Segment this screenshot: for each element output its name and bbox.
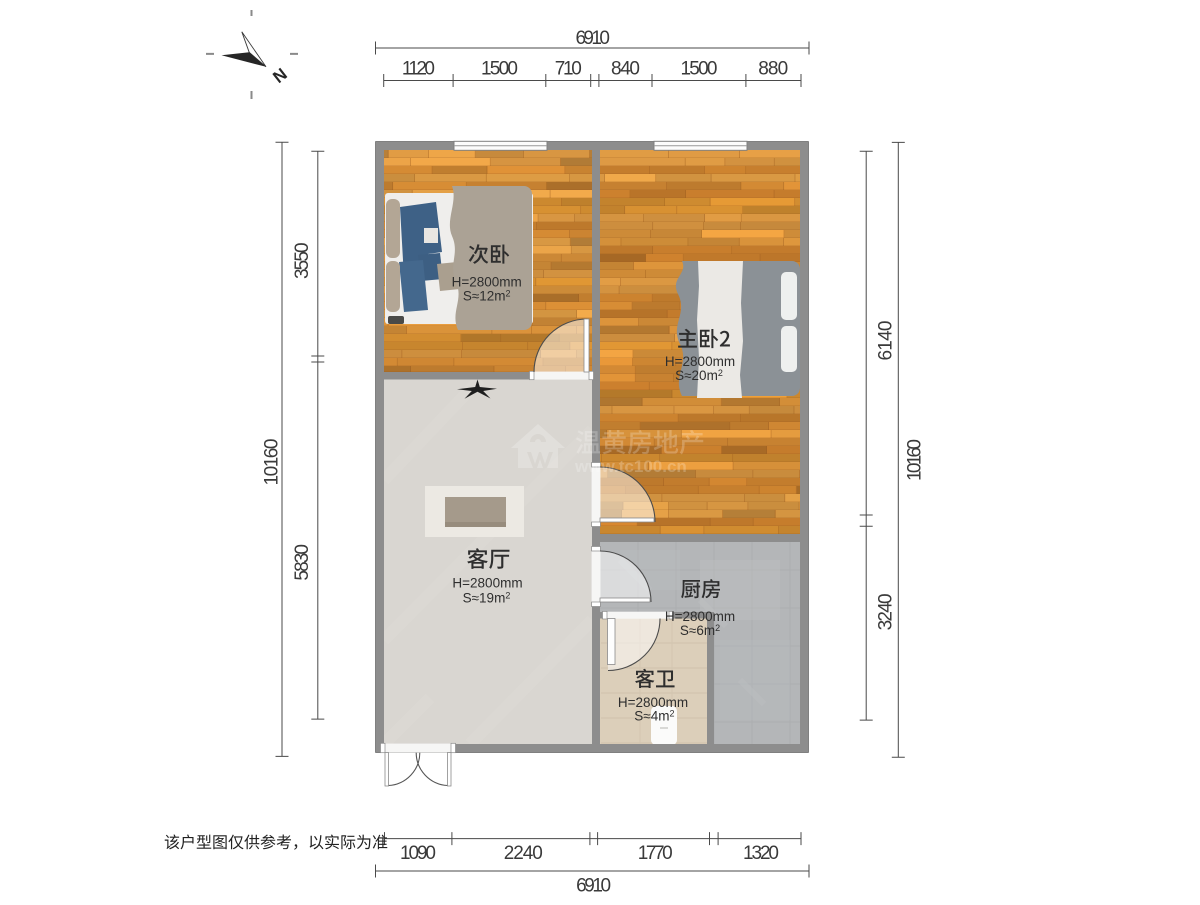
svg-text:5830: 5830 bbox=[292, 544, 313, 581]
svg-text:6910: 6910 bbox=[576, 876, 611, 897]
svg-text:S≈6m2: S≈6m2 bbox=[680, 623, 720, 638]
svg-text:www.tc100.cn: www.tc100.cn bbox=[574, 457, 687, 476]
svg-text:S≈20m2: S≈20m2 bbox=[675, 368, 723, 383]
svg-text:2240: 2240 bbox=[504, 843, 543, 864]
svg-text:H=2800mm: H=2800mm bbox=[452, 275, 522, 290]
svg-text:3240: 3240 bbox=[876, 593, 897, 630]
svg-text:6910: 6910 bbox=[575, 28, 610, 49]
svg-text:1500: 1500 bbox=[681, 59, 718, 80]
svg-text:880: 880 bbox=[758, 59, 788, 80]
svg-text:H=2800mm: H=2800mm bbox=[665, 354, 735, 369]
svg-text:1770: 1770 bbox=[638, 843, 673, 864]
svg-text:1120: 1120 bbox=[402, 59, 435, 80]
svg-text:840: 840 bbox=[611, 59, 640, 80]
svg-text:10160: 10160 bbox=[905, 439, 926, 481]
svg-text:6140: 6140 bbox=[876, 321, 897, 361]
svg-text:710: 710 bbox=[555, 59, 582, 80]
svg-text:3550: 3550 bbox=[292, 242, 313, 279]
svg-text:S≈19m2: S≈19m2 bbox=[463, 591, 511, 606]
svg-text:1090: 1090 bbox=[400, 843, 436, 864]
svg-text:S≈12m2: S≈12m2 bbox=[463, 289, 511, 304]
svg-text:H=2800mm: H=2800mm bbox=[665, 609, 735, 624]
svg-text:H=2800mm: H=2800mm bbox=[452, 576, 522, 591]
svg-text:1500: 1500 bbox=[481, 59, 518, 80]
svg-text:S≈4m2: S≈4m2 bbox=[634, 709, 674, 724]
svg-text:1320: 1320 bbox=[743, 843, 779, 864]
svg-text:10160: 10160 bbox=[262, 439, 283, 486]
